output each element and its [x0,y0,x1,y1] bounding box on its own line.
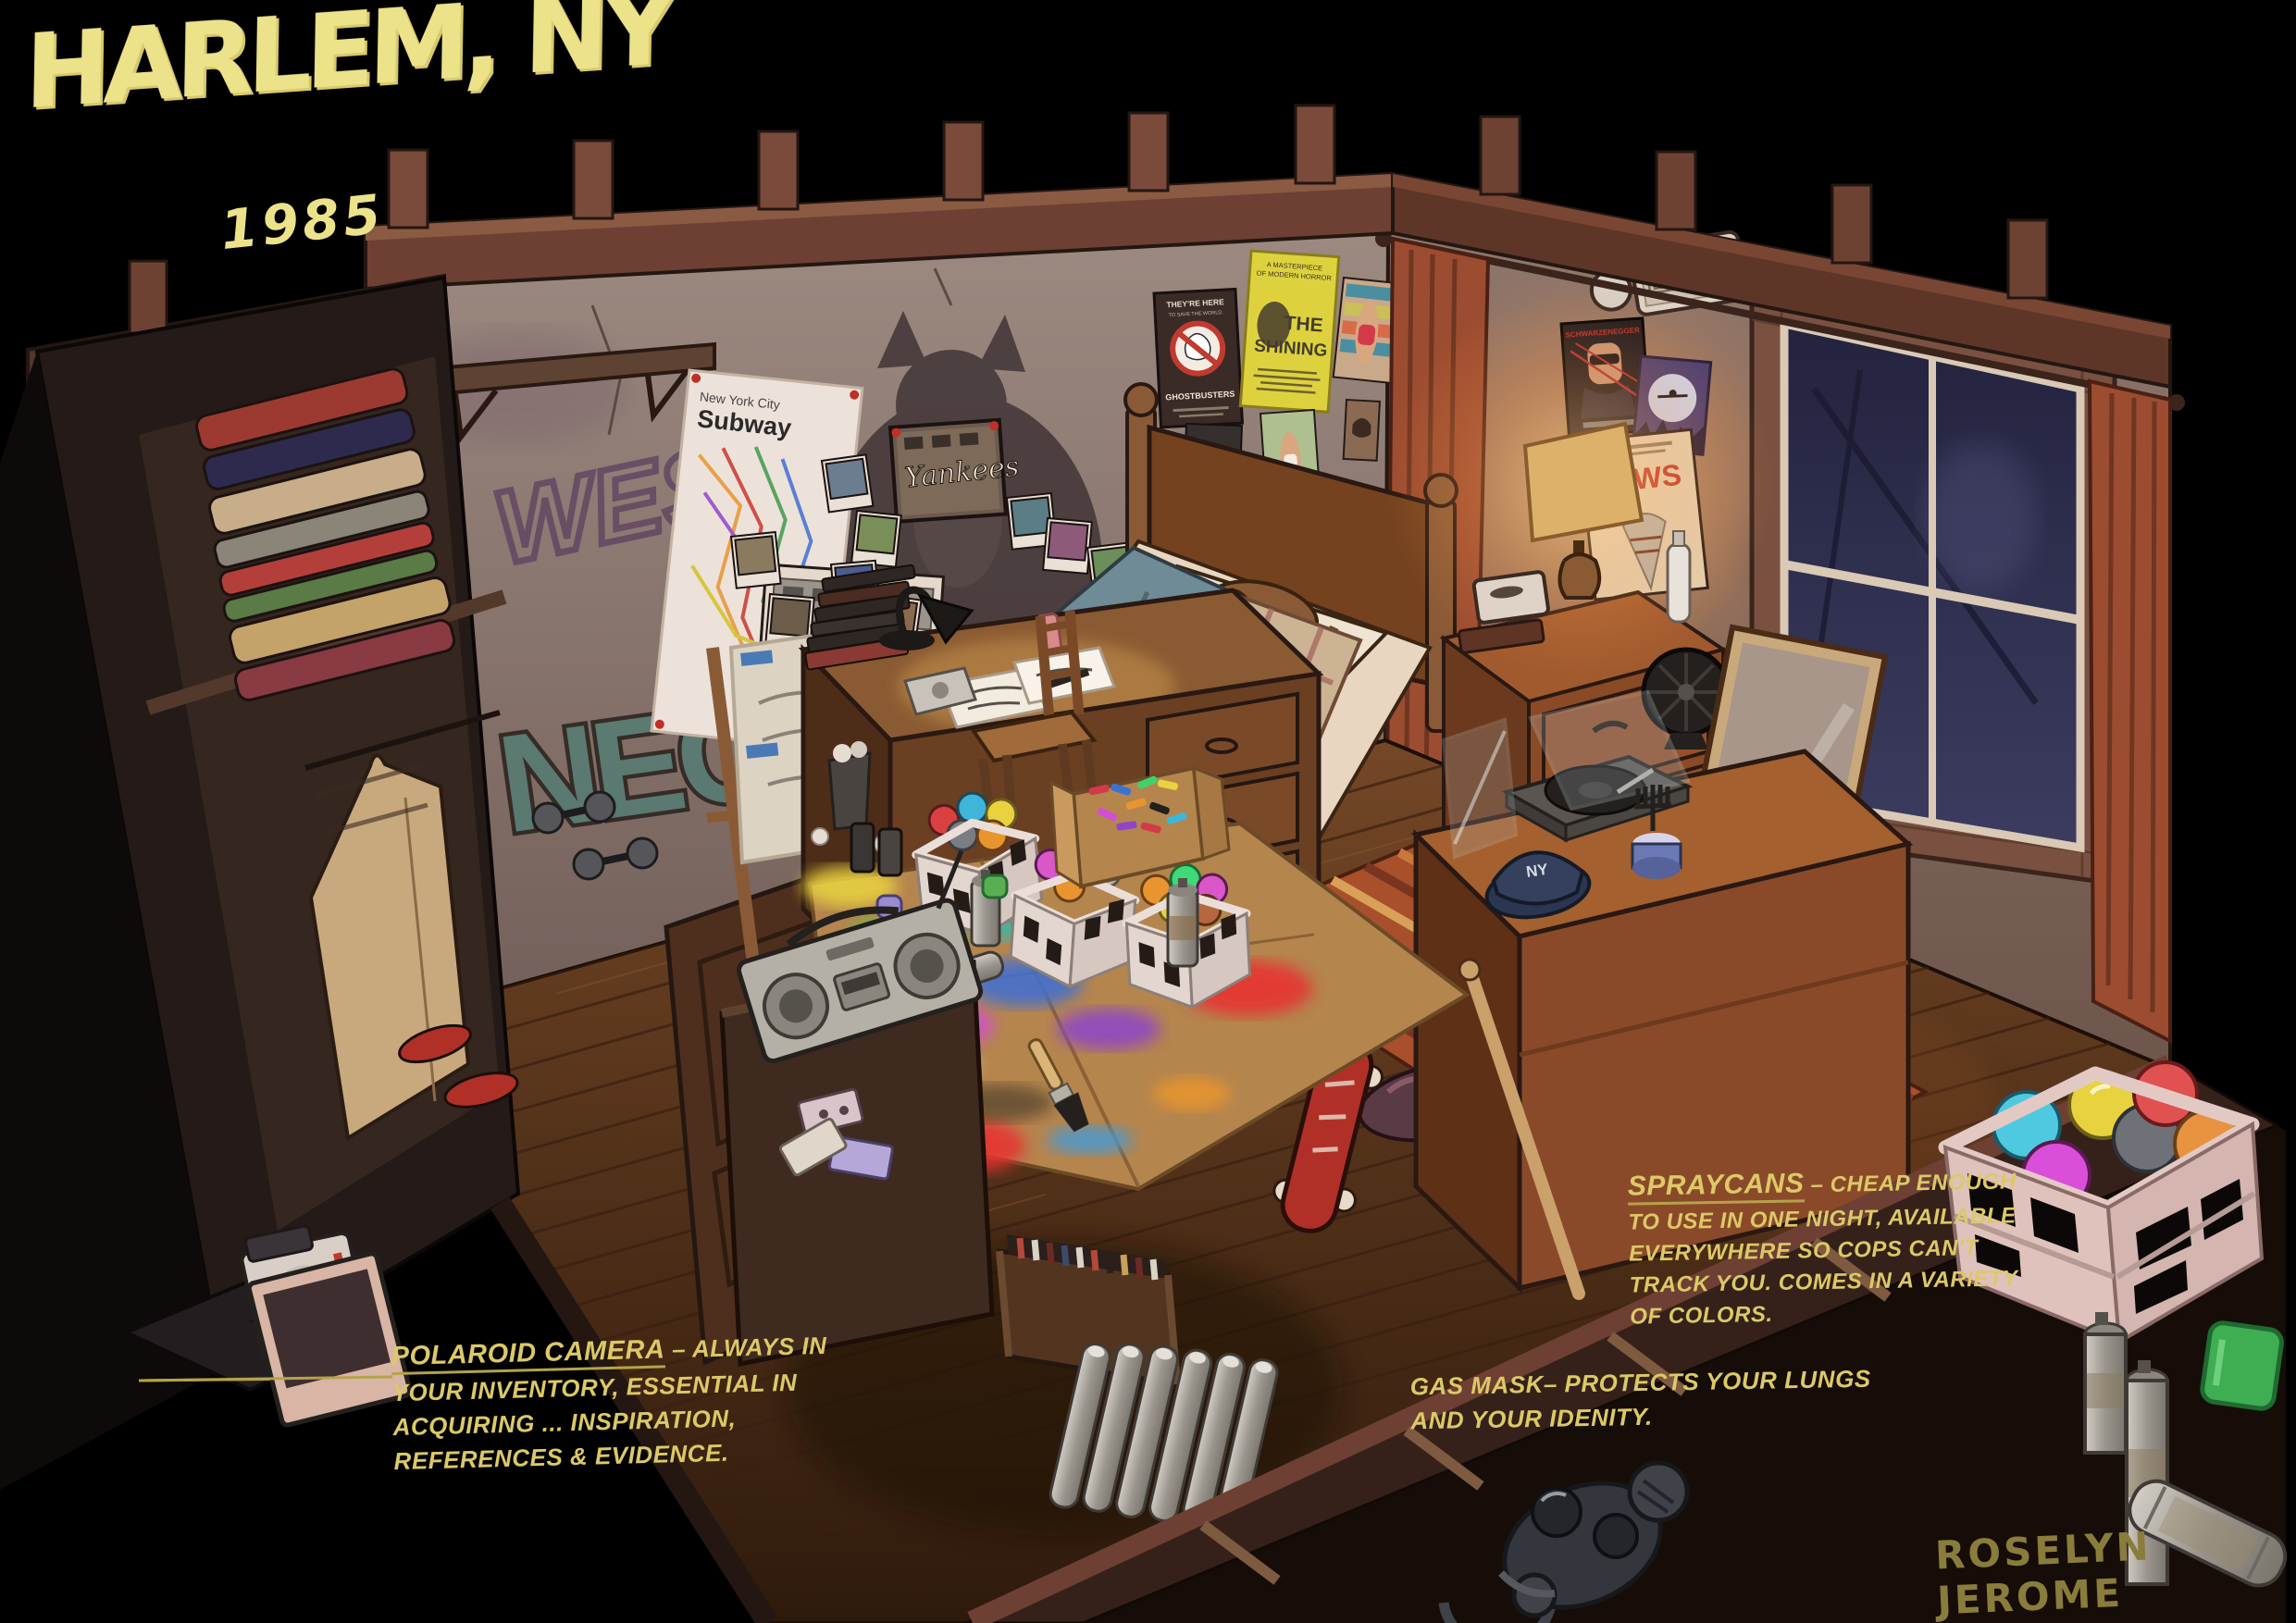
instant-photo-legend [248,1253,411,1427]
green-cap-legend [2201,1321,2283,1410]
note-gas-mask-line1: GAS MASK– PROTECTS YOUR LUNGS [1409,1365,1870,1401]
note-polaroid-term: POLAROID CAMERA [391,1334,665,1375]
note-spraycans-line3: EVERYWHERE SO COPS CAN'T [1629,1235,1979,1267]
pomade-jar [1632,833,1681,879]
tissue-box [1473,571,1549,623]
note-spraycans-line5: OF COLORS. [1630,1302,1773,1330]
concept-art-sheet: WES NEON S New York City Subway SEEN Yan… [0,0,2296,1623]
table-lamp [1384,289,1773,677]
note-gas-mask-line2: AND YOUR IDENITY. [1410,1403,1653,1435]
curtain-right [2090,381,2170,1041]
bat-knob [1459,960,1480,980]
cap-logo-text: NY [1525,861,1550,881]
paint-cap-green [983,875,1007,898]
note-polaroid: POLAROID CAMERA – ALWAYS IN YOUR INVENTO… [391,1327,830,1479]
shining-poster: A MASTERPIECE OF MODERN HORROR THE SHINI… [1240,251,1338,412]
ghostbusters-poster: THEY'RE HERE TO SAVE THE WORLD. GHOSTBUS… [1154,289,1242,427]
note-spraycans: SPRAYCANS – CHEAP ENOUGH TO USE IN ONE N… [1627,1160,2018,1332]
note-gas-mask: GAS MASK– PROTECTS YOUR LUNGS AND YOUR I… [1409,1362,1871,1438]
glass-case [1444,720,1516,857]
artist-signature: ROSELYN JEROME [1934,1518,2296,1623]
portrait-photo [1344,400,1380,461]
shining-title-1: THE [1284,313,1324,337]
note-polaroid-line3: ACQUIRING ... INSPIRATION, [392,1405,736,1442]
note-spraycans-line2: TO USE IN ONE NIGHT, AVAILABLE [1628,1203,2016,1234]
note-spraycans-term: SPRAYCANS [1628,1168,1805,1205]
note-spraycans-line4: TRACK YOU. COMES IN A VARIETY [1629,1266,2017,1297]
bottle [1668,531,1690,622]
note-polaroid-line1: – ALWAYS IN [672,1332,827,1363]
note-polaroid-line2: YOUR INVENTORY, ESSENTIAL IN [391,1369,797,1406]
note-spraycans-line1: – CHEAP ENOUGH [1810,1169,2017,1197]
note-polaroid-line4: REFERENCES & EVIDENCE. [393,1439,729,1475]
